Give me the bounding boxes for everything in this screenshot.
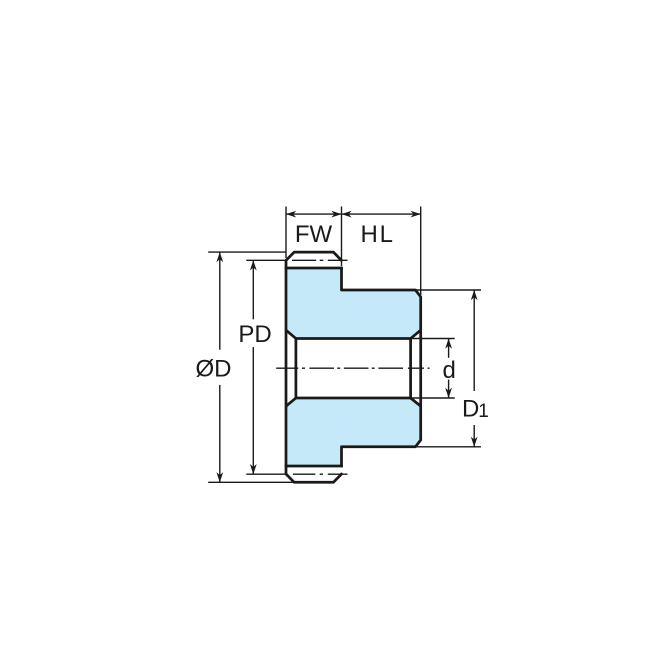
svg-text:d: d <box>443 357 456 384</box>
svg-text:PD: PD <box>238 321 271 348</box>
svg-text:FW: FW <box>295 221 333 248</box>
svg-text:D: D <box>462 396 479 423</box>
svg-text:ØD: ØD <box>196 355 232 382</box>
svg-text:HL: HL <box>360 221 394 248</box>
svg-text:1: 1 <box>478 401 489 422</box>
